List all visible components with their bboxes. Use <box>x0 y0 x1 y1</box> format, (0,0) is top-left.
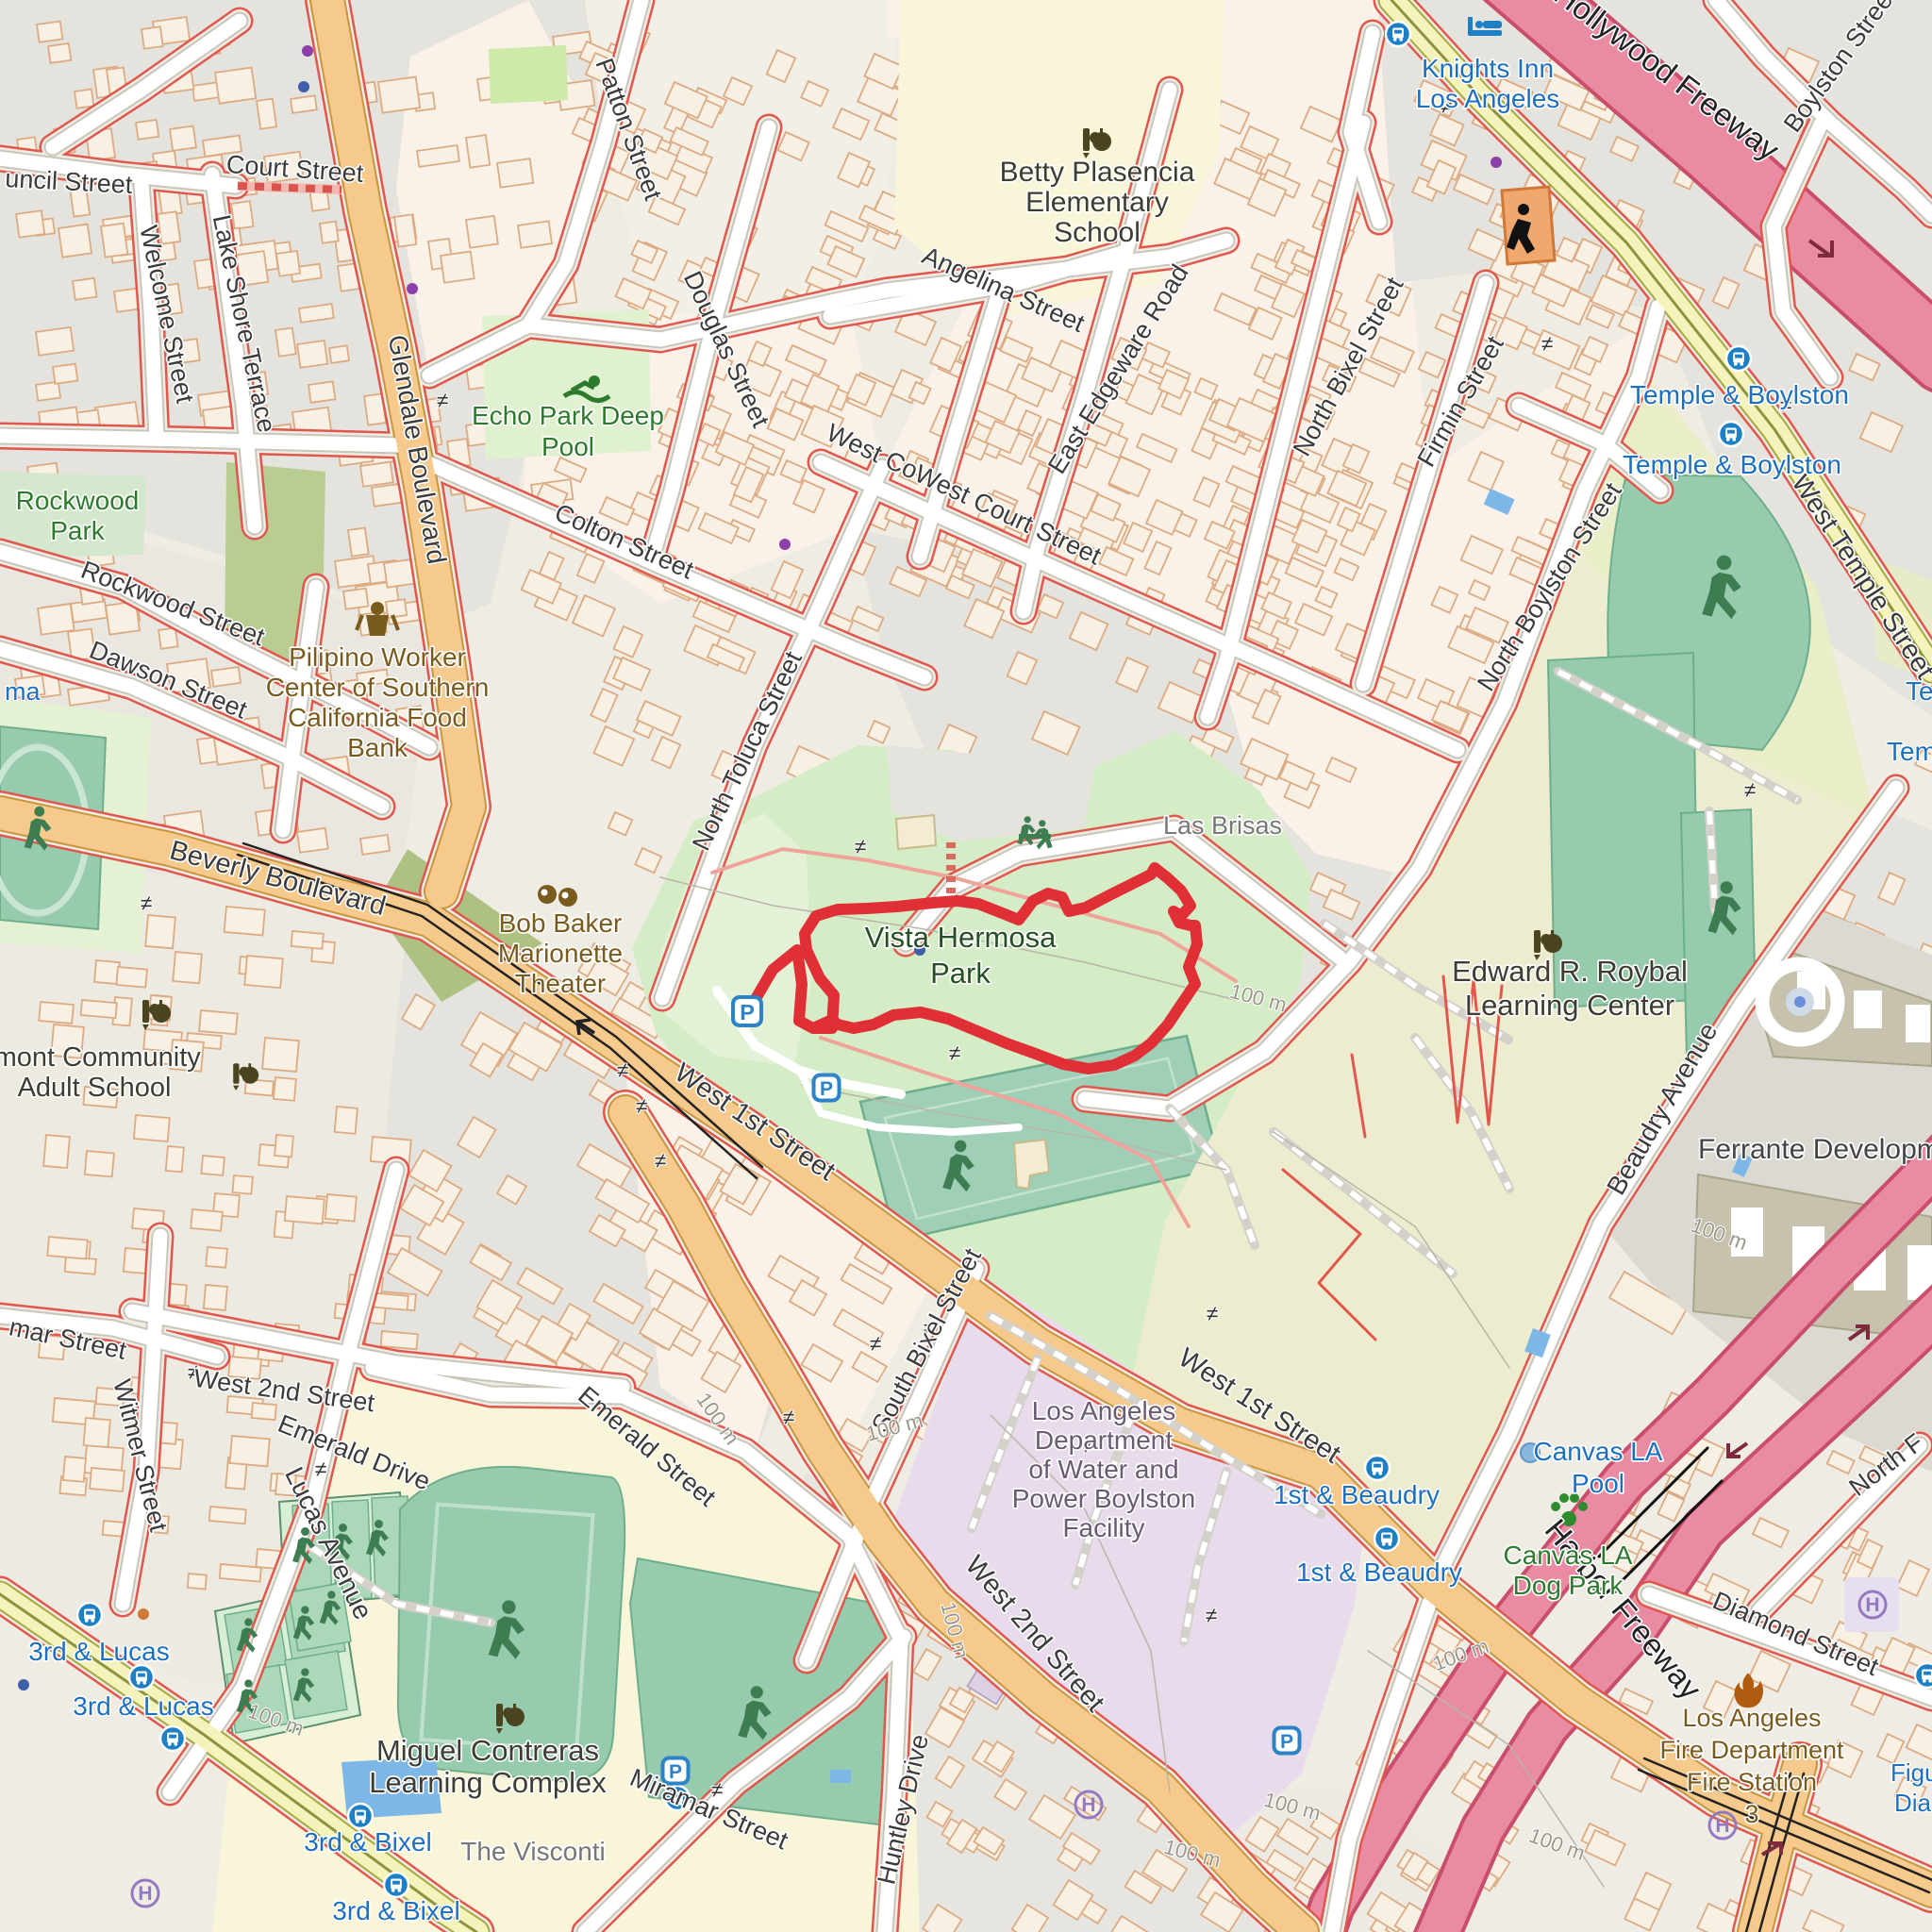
svg-text:3rd & Bixel: 3rd & Bixel <box>332 1896 459 1925</box>
svg-text:Echo Park Deep: Echo Park Deep <box>472 401 664 430</box>
svg-text:of Water and: of Water and <box>1028 1455 1178 1484</box>
svg-text:3rd & Lucas: 3rd & Lucas <box>73 1691 213 1721</box>
svg-text:Pool: Pool <box>1572 1469 1624 1498</box>
svg-text:≠: ≠ <box>141 891 153 915</box>
svg-text:Center of Southern: Center of Southern <box>266 673 490 702</box>
svg-text:Vista Hermosa: Vista Hermosa <box>865 921 1057 954</box>
svg-text:H: H <box>1715 1815 1729 1837</box>
svg-text:Park: Park <box>930 957 991 990</box>
svg-text:P: P <box>1280 1731 1293 1753</box>
svg-text:Los Angeles: Los Angeles <box>1682 1704 1821 1732</box>
svg-text:The Visconti: The Visconti <box>460 1837 606 1866</box>
svg-text:P: P <box>740 1000 755 1024</box>
svg-text:Edward R. Roybal: Edward R. Roybal <box>1452 955 1688 988</box>
svg-text:Temple & Boylston: Temple & Boylston <box>1630 380 1849 409</box>
svg-text:≠: ≠ <box>636 1093 648 1118</box>
svg-text:Rockwood: Rockwood <box>16 486 140 515</box>
svg-text:H: H <box>1081 1794 1095 1816</box>
svg-text:ma: ma <box>5 677 41 706</box>
svg-text:≠: ≠ <box>855 834 867 858</box>
svg-text:≠: ≠ <box>1206 1603 1218 1627</box>
svg-text:≠: ≠ <box>783 1405 795 1429</box>
svg-text:H: H <box>138 1883 152 1905</box>
svg-text:Bank: Bank <box>347 733 408 762</box>
svg-text:Dog Park: Dog Park <box>1513 1571 1624 1600</box>
svg-text:≠: ≠ <box>617 1058 629 1082</box>
svg-text:California Food: California Food <box>288 703 467 732</box>
svg-text:Department: Department <box>1035 1425 1174 1455</box>
svg-text:Temple: Temple <box>1887 737 1932 766</box>
svg-text:Canvas LA: Canvas LA <box>1534 1437 1663 1466</box>
svg-text:≠: ≠ <box>949 1041 961 1065</box>
svg-text:Pool: Pool <box>541 432 594 461</box>
svg-text:Park: Park <box>50 516 106 545</box>
svg-text:Theater: Theater <box>515 969 607 998</box>
svg-text:Ferrante Developme: Ferrante Developme <box>1698 1134 1932 1165</box>
svg-text:≠: ≠ <box>1541 331 1554 356</box>
svg-text:Fire Station: Fire Station <box>1687 1768 1817 1796</box>
svg-text:Canvas LA: Canvas LA <box>1504 1541 1633 1570</box>
svg-text:≠: ≠ <box>437 388 449 412</box>
svg-text:≠: ≠ <box>1207 1301 1219 1325</box>
svg-text:Dia: Dia <box>1894 1789 1932 1817</box>
svg-text:Betty Plasencia: Betty Plasencia <box>1000 157 1195 188</box>
svg-text:≠: ≠ <box>655 1148 667 1173</box>
svg-text:Adult School: Adult School <box>18 1073 172 1103</box>
svg-text:H: H <box>1865 1594 1879 1616</box>
svg-text:≠: ≠ <box>315 1457 327 1481</box>
svg-text:1st & Beaudry: 1st & Beaudry <box>1296 1557 1462 1587</box>
svg-text:Learning Center: Learning Center <box>1465 989 1674 1022</box>
svg-text:Bob Baker: Bob Baker <box>499 908 623 938</box>
svg-text:3rd & Bixel: 3rd & Bixel <box>304 1827 431 1857</box>
svg-text:Miguel Contreras: Miguel Contreras <box>376 1734 599 1767</box>
svg-text:≠: ≠ <box>870 1331 882 1356</box>
svg-text:≠: ≠ <box>1744 777 1757 802</box>
svg-text:P: P <box>820 1078 833 1100</box>
svg-text:School: School <box>1054 217 1141 248</box>
svg-text:Los Angeles: Los Angeles <box>1416 84 1560 113</box>
svg-text:Power Boylston: Power Boylston <box>1012 1484 1196 1513</box>
svg-text:3rd & Lucas: 3rd & Lucas <box>28 1637 169 1666</box>
svg-text:Marionette: Marionette <box>498 939 623 968</box>
svg-text:Figu: Figu <box>1890 1758 1932 1787</box>
svg-text:Knights Inn: Knights Inn <box>1422 54 1554 83</box>
svg-text:1st & Beaudry: 1st & Beaudry <box>1274 1480 1440 1509</box>
svg-text:Temp: Temp <box>1906 676 1932 706</box>
svg-text:Los Angeles: Los Angeles <box>1032 1396 1176 1425</box>
svg-text:Learning Complex: Learning Complex <box>369 1766 607 1799</box>
svg-text:Elementary: Elementary <box>1025 187 1169 218</box>
svg-text:Temple & Boylston: Temple & Boylston <box>1623 450 1841 479</box>
svg-text:3: 3 <box>1744 1800 1758 1828</box>
svg-text:Facility: Facility <box>1062 1513 1144 1542</box>
svg-text:Fire Department: Fire Department <box>1659 1736 1844 1764</box>
svg-text:lmont Community: lmont Community <box>0 1042 201 1073</box>
svg-text:Las Brisas: Las Brisas <box>1163 811 1282 840</box>
svg-text:Pilipino Worker: Pilipino Worker <box>289 642 466 672</box>
